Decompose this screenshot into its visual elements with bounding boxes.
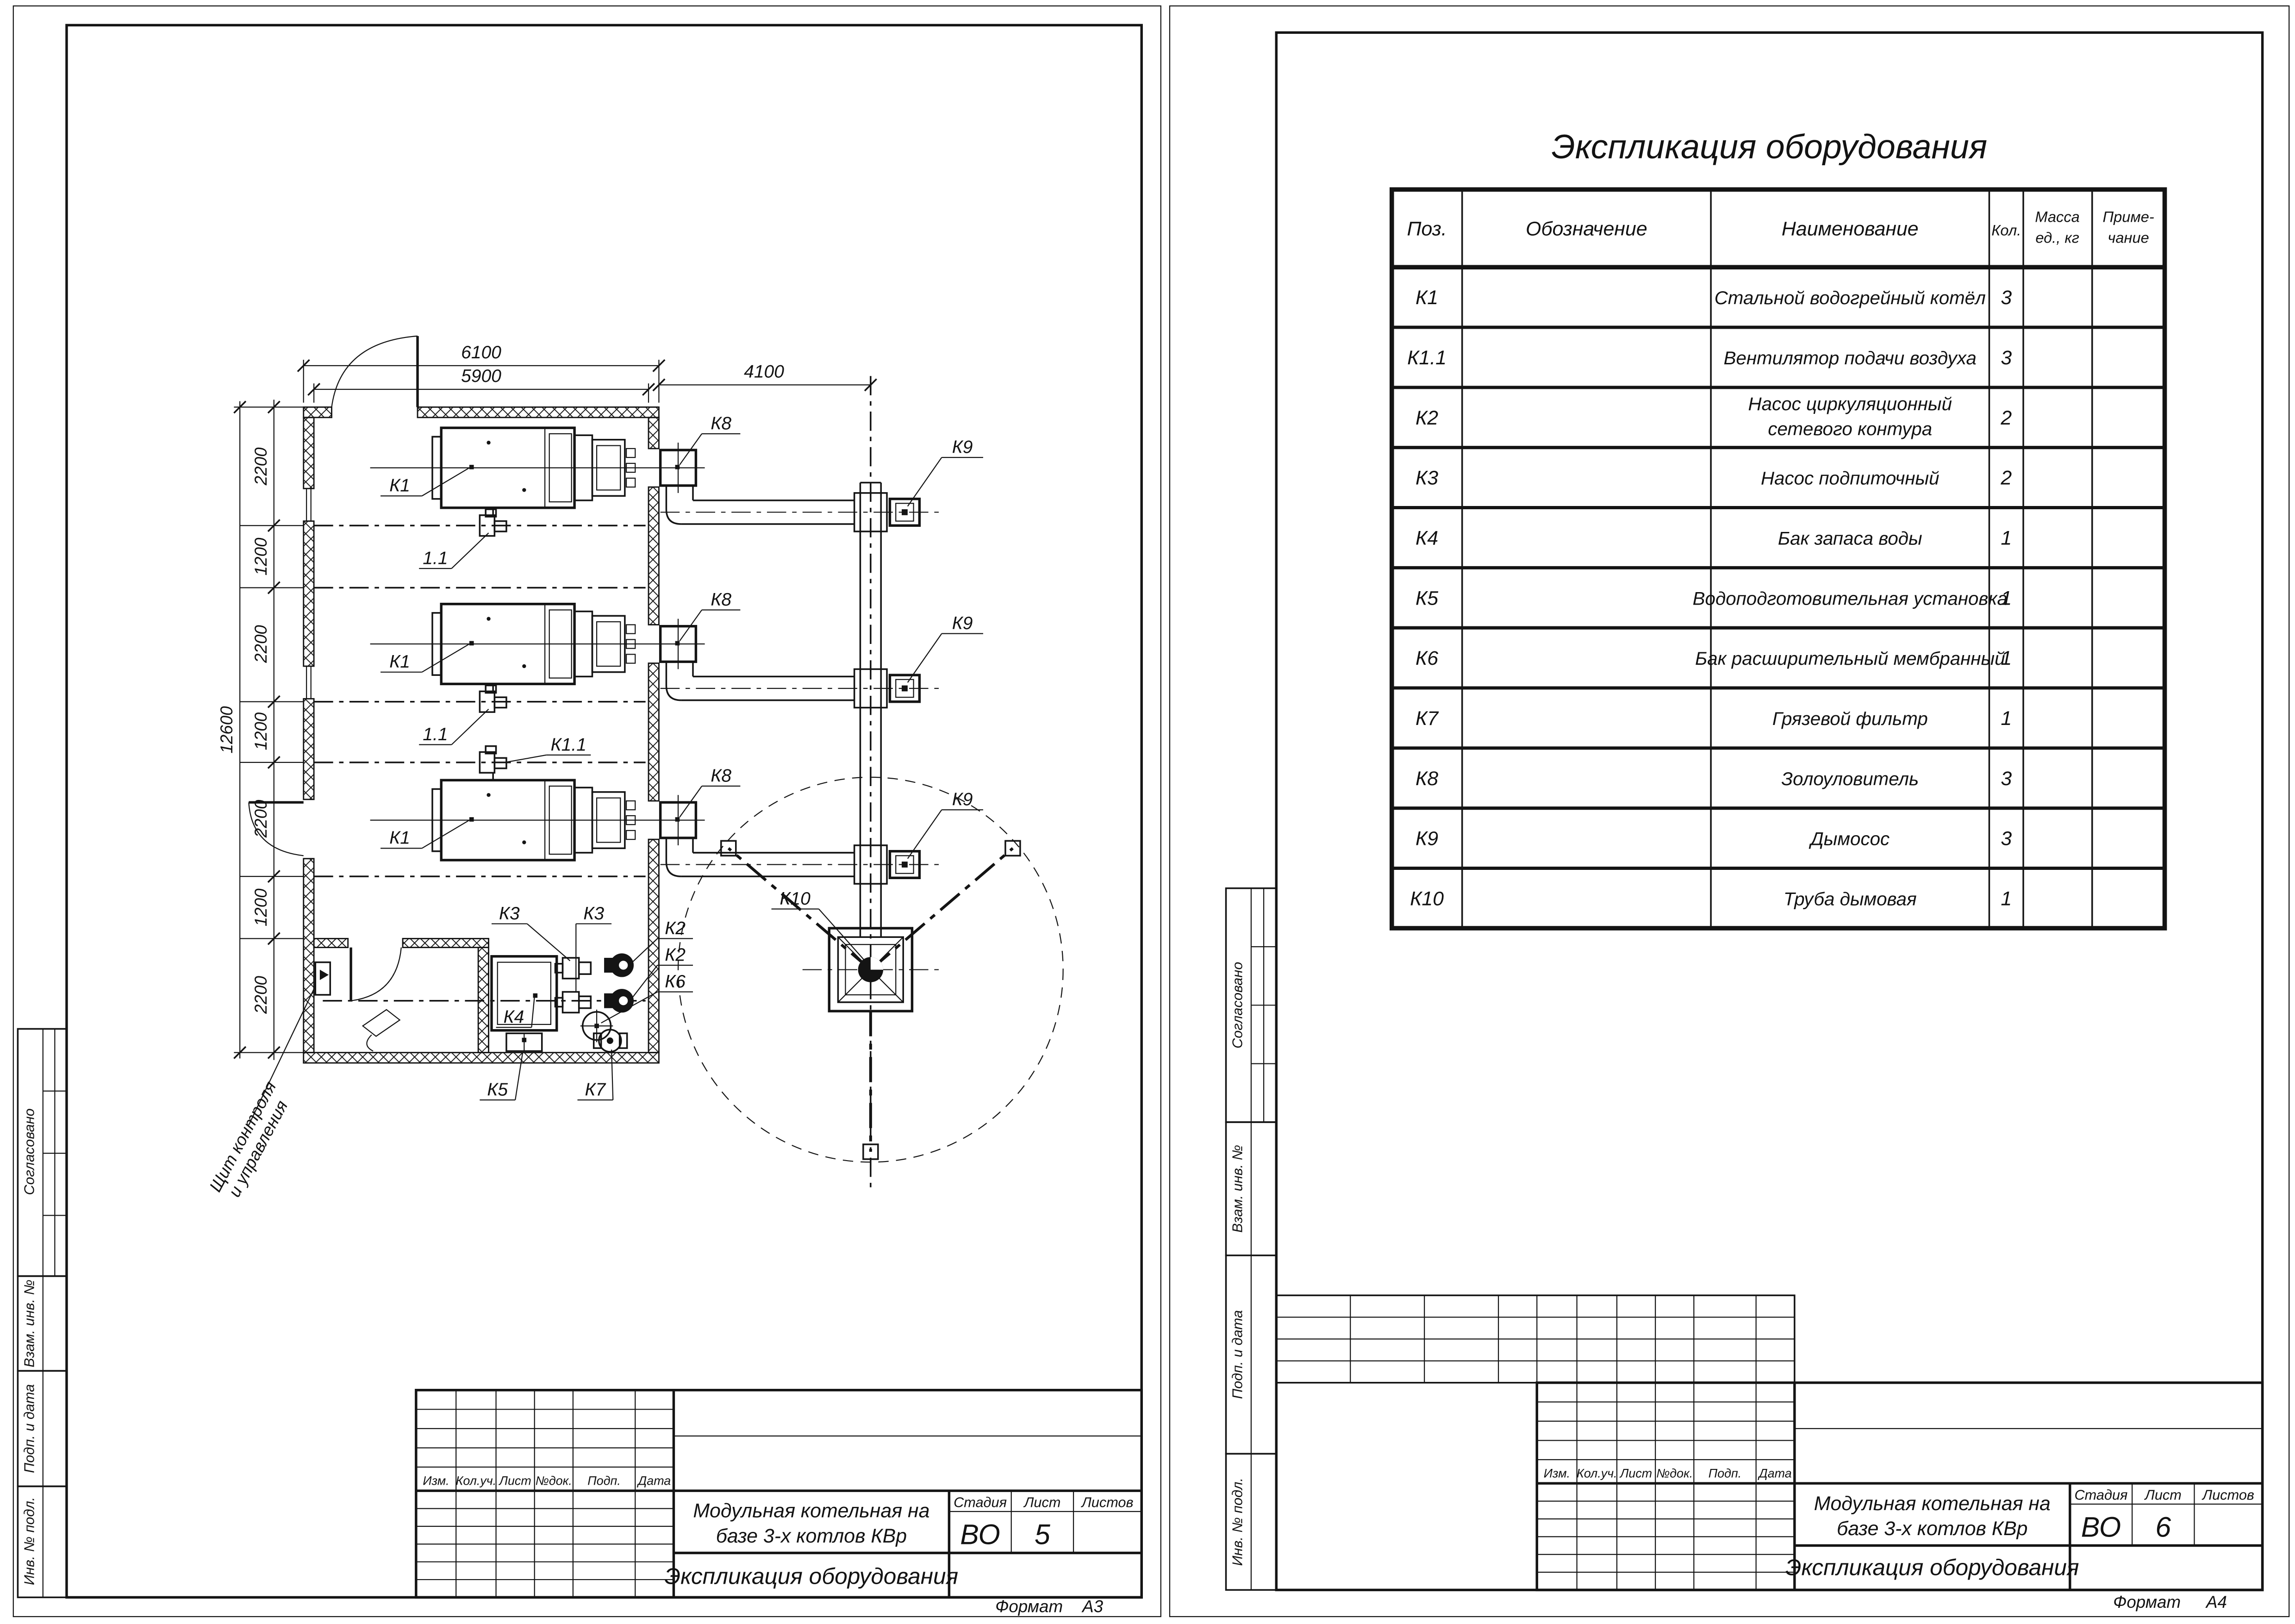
dim-flue-offset: 4100 [744,362,784,381]
table-title: Экспликация оборудования [1552,127,1987,166]
label-k8: К8 [711,590,731,610]
stamp-agreed: Согласовано [21,1108,37,1195]
cell-name: Насос подпиточный [1761,468,1940,489]
stamp-replace-inv: Взам. инв. № [21,1280,37,1368]
cell-name-line1: Насос циркуляционный [1748,394,1952,414]
cell-pos: К6 [1416,647,1438,669]
tb-stage-value: ВО [960,1518,1000,1550]
tb-project-line2: базе 3-х котлов КВр [716,1525,907,1547]
sheet-left: 6100 5900 4100 [13,6,1161,1617]
label-k5: К5 [487,1080,508,1099]
dim-width-inner: 5900 [461,366,501,386]
format-label: Формат [995,1597,1063,1616]
dim-chain-2: 1200 [251,537,270,575]
cell-pos: К7 [1416,707,1439,730]
stamp-replace-inv: Взам. инв. № [1229,1145,1246,1233]
tb-col-list: Лист [1619,1466,1652,1480]
partition-wall [314,938,348,947]
label-k10: К10 [780,889,811,909]
cell-name: Труба дымовая [1784,888,1917,909]
fan-3 [480,746,506,773]
partition-wall [403,938,489,947]
cell-qty: 1 [2001,707,2012,730]
ash-catcher-2 [661,619,939,708]
tb-doc-title: Экспликация оборудования [1785,1554,2079,1580]
table-row: К6 Бак расширительный мембранный 1 [1416,647,2012,669]
th-mass-line1: Масса [2035,208,2079,225]
cell-name: Вентилятор подачи воздуха [1724,348,1977,369]
th-note-line2: чание [2108,229,2149,246]
cell-pos: К8 [1416,768,1438,790]
cell-pos: К3 [1416,467,1438,489]
tb-sheets-label: Листов [2201,1487,2254,1503]
th-designation: Обозначение [1526,218,1647,240]
door-main [332,336,418,407]
label-k2: К2 [665,945,686,965]
ash-catcher-3 [661,795,939,884]
cell-qty: 1 [2001,887,2012,910]
table-header-row: Поз. Обозначение Наименование Кол. Масса… [1407,208,2154,246]
label-k1: К1 [389,476,410,496]
cell-pos: К1.1 [1407,347,1447,369]
floor-plan: 6100 5900 4100 [206,336,1063,1204]
dim-width-outer: 6100 [461,343,501,362]
control-panel-box [315,962,330,995]
side-stamps-right: Согласовано Взам. инв. № Подп. и дата Ин… [1226,888,1277,1590]
cell-qty: 1 [2001,527,2012,549]
dim-chain-7: 2200 [251,975,270,1014]
tb-project-line1: Модульная котельная на [1814,1493,2051,1515]
th-qty: Кол. [1991,221,2021,238]
cell-name: Водоподготовительная установка [1693,588,2008,609]
label-k8: К8 [711,766,731,786]
cell-name: Стальной водогрейный котёл [1715,287,1986,308]
label-k8: К8 [711,413,731,433]
label-k9: К9 [952,613,973,633]
dim-height-total: 12600 [217,706,236,754]
side-stamps-left: Согласовано Взам. инв. № Подп. и дата Ин… [18,1029,67,1597]
ash-catcher-1 [661,443,939,531]
title-block-extra-grid [1276,1295,1795,1383]
tb-col-data: Дата [636,1474,671,1487]
tb-sheet-label: Лист [2144,1487,2182,1503]
tb-sheets-label: Листов [1081,1494,1134,1510]
stamp-inv-orig: Инв. № подл. [1229,1478,1246,1566]
label-k7: К7 [585,1080,606,1099]
feed-pump-k3b [555,992,591,1013]
label-k11: К1.1 [551,735,586,755]
tb-col-izm: Изм. [423,1474,449,1487]
table-row: К7 Грязевой фильтр 1 [1416,707,2012,730]
cell-name-line2: сетевого контура [1768,418,1932,439]
tb-sheet-label: Лист [1023,1494,1060,1510]
drawing-canvas: 6100 5900 4100 [0,0,2295,1624]
tb-project-line2: базе 3-х котлов КВр [1837,1518,2027,1540]
partition-wall [478,948,488,1053]
table-row: К1 Стальной водогрейный котёл 3 [1416,287,2012,309]
label-k3: К3 [583,904,604,924]
expansion-tank-k6 [580,1010,613,1042]
cell-qty: 3 [2001,287,2012,309]
cell-qty: 1 [2001,587,2012,609]
stamp-sign-date: Подп. и дата [1229,1310,1246,1399]
format-label: Формат [2113,1593,2181,1612]
format-value: А3 [1081,1597,1104,1616]
network-pump-k2a [604,953,634,977]
dim-chain-4: 1200 [251,712,270,750]
label-fan-11: 1.1 [423,725,448,744]
label-control-panel: Щит контроля и управления [206,1078,297,1204]
stamp-sign-date: Подп. и дата [21,1384,37,1473]
cell-name: Бак запаса воды [1778,528,1922,549]
building-walls [249,336,659,1063]
door-partition [351,948,401,1001]
cell-qty: 1 [2001,647,2012,669]
sheet-left-edge [13,6,1161,1617]
water-treatment-k5 [506,1033,542,1051]
label-k1: К1 [389,828,410,848]
cell-pos: К10 [1410,887,1444,910]
cell-qty: 2 [2000,467,2012,489]
label-k4: К4 [504,1007,524,1027]
table-row: К5 Водоподготовительная установка 1 [1416,587,2012,609]
table-row: К9 Дымосос 3 [1416,828,2012,850]
label-k9: К9 [952,437,973,457]
flue-train [661,443,939,937]
cell-pos: К4 [1416,527,1438,549]
tb-col-ndok: №док. [536,1474,572,1487]
plan-axes [314,376,939,1187]
tb-sheet-number: 5 [1035,1518,1050,1550]
title-block-right: Изм. Кол.уч. Лист №док. Подп. Дата Модул… [1537,1383,2262,1612]
table-row: К2 Насос циркуляционный сетевого контура… [1416,394,2012,439]
format-value: А4 [2205,1593,2227,1612]
cell-name: Грязевой фильтр [1772,708,1928,729]
cell-pos: К2 [1416,407,1438,429]
stamp-inv-orig: Инв. № подл. [21,1497,37,1585]
feed-pump-k3a [555,958,591,979]
tb-col-koluch: Кол.уч. [1577,1466,1617,1480]
stamp-agreed: Согласовано [1229,962,1246,1049]
sheet-right: Экспликация оборудования Поз. Обозначени… [1170,6,2289,1617]
tb-col-ndok: №док. [1656,1466,1693,1480]
sheet-left-frame [67,25,1141,1597]
cell-name: Золоуловитель [1781,768,1919,789]
cell-pos: К1 [1416,287,1438,309]
table-row: К4 Бак запаса воды 1 [1416,527,2012,549]
mud-filter-k7 [594,1030,627,1052]
label-k9: К9 [952,790,973,810]
tb-doc-title: Экспликация оборудования [665,1563,958,1589]
tb-sheet-number: 6 [2155,1511,2171,1543]
equipment-table: Поз. Обозначение Наименование Кол. Масса… [1392,189,2165,928]
label-k1: К1 [389,652,410,672]
dim-chain-3: 2200 [251,625,270,663]
table-row: К8 Золоуловитель 3 [1416,768,2012,790]
dim-chain-5: 2200 [251,800,270,838]
cell-qty: 3 [2001,347,2012,369]
tb-stage-label: Стадия [2075,1487,2128,1503]
pump-room [315,953,634,1052]
label-k3: К3 [499,904,520,924]
tb-col-list: Лист [499,1474,531,1487]
table-row: К3 Насос подпиточный 2 [1416,467,2012,489]
tb-stage-label: Стадия [954,1494,1007,1510]
tb-col-data: Дата [1758,1466,1792,1480]
label-fan-11: 1.1 [423,548,448,568]
th-mass-line2: ед., кг [2035,229,2079,246]
dim-chain-1: 2200 [251,447,270,486]
th-pos: Поз. [1407,218,1447,240]
cell-name: Бак расширительный мембранный [1695,648,2005,669]
cell-qty: 2 [2000,407,2012,429]
cell-pos: К5 [1416,587,1438,609]
network-pump-k2b [604,989,634,1012]
dim-chain-6: 1200 [251,888,270,926]
tb-project-line1: Модульная котельная на [693,1500,929,1522]
th-note-line1: Приме- [2103,208,2154,225]
title-block-left: Изм. Кол.уч. Лист №док. Подп. Дата Модул… [416,1390,1141,1616]
tb-col-podp: Подп. [587,1474,621,1487]
tb-stage-value: ВО [2081,1511,2121,1543]
cell-name: Дымосос [1809,829,1890,849]
cell-qty: 3 [2001,828,2012,850]
tb-col-podp: Подп. [1709,1466,1742,1480]
control-room-desk [363,1010,400,1051]
label-k6: К6 [665,972,686,992]
sheet-right-edge [1170,6,2289,1617]
cell-qty: 3 [2001,768,2012,790]
cell-pos: К9 [1416,828,1438,850]
tb-col-koluch: Кол.уч. [456,1474,497,1487]
th-name: Наименование [1782,218,1919,240]
drawing-svg: 6100 5900 4100 [0,0,2295,1624]
table-row: К1.1 Вентилятор подачи воздуха 3 [1407,347,2012,369]
tb-col-izm: Изм. [1544,1466,1570,1480]
label-k2: К2 [665,918,686,938]
